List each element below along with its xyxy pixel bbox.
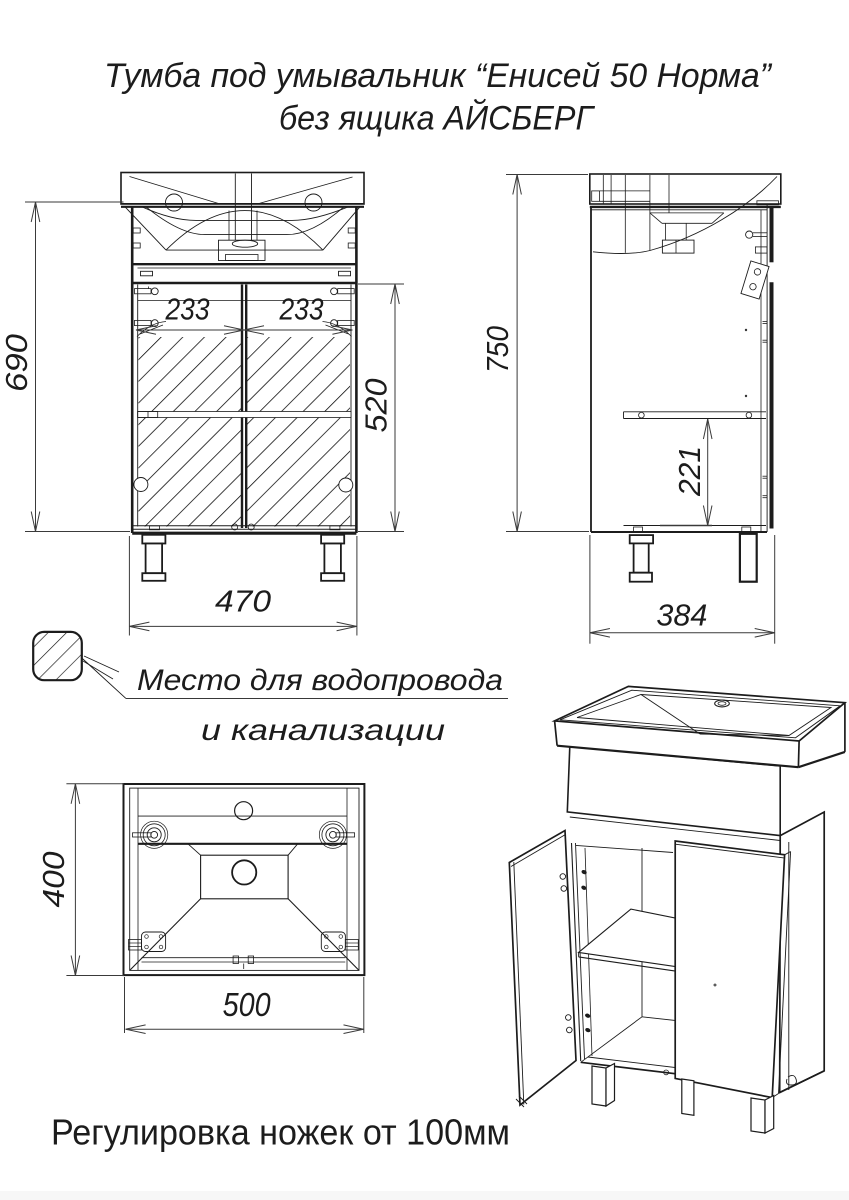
svg-text:233: 233 [165,292,210,327]
svg-text:750: 750 [480,326,515,373]
svg-text:Тумба под умывальник “Енисей 5: Тумба под умывальник “Енисей 50 Норма” [104,57,773,95]
svg-text:без ящика АЙСБЕРГ: без ящика АЙСБЕРГ [279,99,595,138]
svg-text:470: 470 [215,584,271,619]
svg-text:и канализации: и канализации [201,714,445,747]
svg-text:520: 520 [359,379,394,433]
svg-text:233: 233 [279,292,324,327]
svg-text:500: 500 [223,986,272,1023]
svg-text:400: 400 [36,852,71,908]
svg-text:690: 690 [0,334,34,392]
svg-text:221: 221 [672,446,707,497]
svg-text:384: 384 [656,598,707,633]
svg-text:Место для водопровода: Место для водопровода [137,664,503,697]
svg-text:Регулировка ножек от 100мм: Регулировка ножек от 100мм [51,1112,510,1153]
